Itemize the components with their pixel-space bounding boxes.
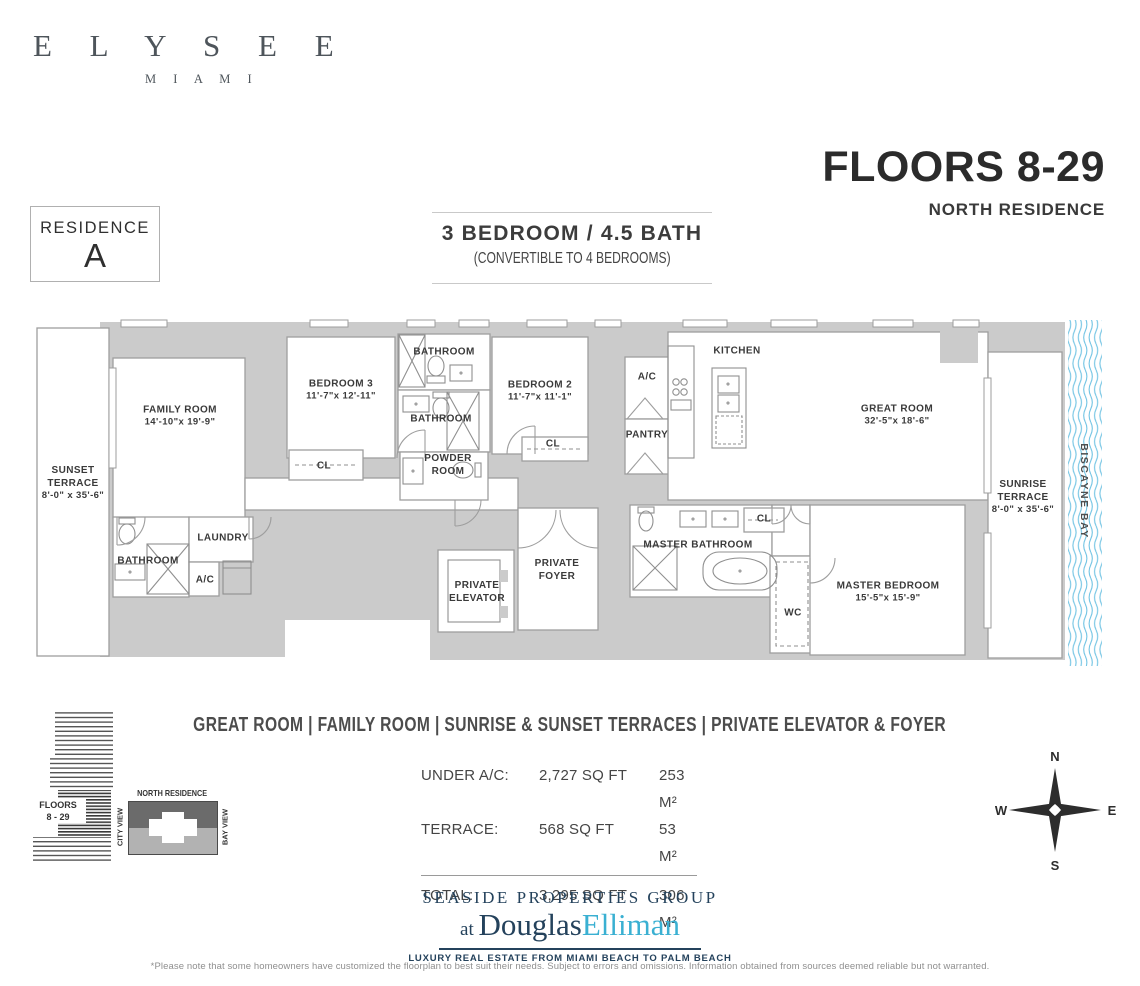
room-label-bedroom-2: BEDROOM 211'-7"x 11'-1" — [480, 378, 600, 403]
broker-logo: at DouglasElliman — [0, 909, 1140, 947]
room-label-family-room: FAMILY ROOM14'-10"x 19'-9" — [120, 403, 240, 428]
broker-block: SEASIDE PROPERTIES GROUP at DouglasEllim… — [0, 888, 1140, 964]
room-label-sunrise-terrace: SUNRISE TERRACE8'-0" x 35'-6" — [978, 478, 1068, 516]
header-rule-bottom — [432, 283, 712, 284]
area-row-under-ac: UNDER A/C: 2,727 SQ FT 253 M² — [421, 762, 697, 816]
biscayne-bay-label: BISCAYNE BAY — [1078, 443, 1090, 538]
room-label-great-room: GREAT ROOM32'-5"x 18'-6" — [832, 402, 962, 427]
broker-group-name: SEASIDE PROPERTIES GROUP — [0, 888, 1140, 908]
room-label-private-foyer: PRIVATE FOYER — [527, 557, 587, 583]
floors-title: FLOORS 8-29 — [822, 143, 1105, 192]
room-label-bathroom-top: BATHROOM — [404, 346, 484, 359]
room-label-ac-upper: A/C — [627, 371, 667, 384]
header-rule-top — [432, 212, 712, 213]
compass-n: N — [1050, 749, 1059, 764]
unit-key-diagram — [128, 801, 218, 855]
wall-notch — [940, 330, 978, 363]
room-label-kitchen: KITCHEN — [697, 345, 777, 358]
broker-rule — [439, 948, 701, 950]
broker-at: at — [460, 919, 478, 940]
room-label-closet-bed3: CL — [304, 460, 344, 473]
room-label-laundry: LAUNDRY — [188, 532, 258, 545]
room-label-bathroom-lower: BATHROOM — [103, 555, 193, 568]
features-text: GREAT ROOM | FAMILY ROOM | SUNRISE & SUN… — [194, 714, 947, 737]
residence-letter: A — [31, 238, 159, 274]
broker-name-douglas: Douglas — [478, 907, 581, 942]
room-label-master-closet: CL — [749, 513, 779, 526]
unit-key-bay-view: BAY VIEW — [221, 809, 230, 845]
floors-header: FLOORS 8-29 NORTH RESIDENCE — [822, 143, 1105, 220]
room-label-wc: WC — [776, 607, 810, 620]
room-label-sunset-terrace: SUNSET TERRACE8'-0" x 35'-6" — [38, 464, 108, 502]
room-ac-upper — [625, 357, 670, 419]
building-floors-label: FLOORS 8 - 29 — [30, 799, 86, 823]
room-family-room — [113, 358, 245, 518]
convertible-text: (CONVERTIBLE TO 4 BEDROOMS) — [474, 250, 671, 268]
room-label-private-elevator: PRIVATE ELEVATOR — [442, 579, 512, 605]
room-label-pantry: PANTRY — [617, 429, 677, 442]
unit-key-plus-v — [162, 812, 184, 843]
floor-plan-drawing — [35, 318, 1102, 668]
room-pantry — [625, 419, 670, 474]
compass-e: E — [1108, 803, 1117, 818]
residence-box: RESIDENCE A — [30, 206, 160, 282]
residence-label: RESIDENCE — [31, 219, 159, 238]
room-label-closet-bed2: CL — [533, 438, 573, 451]
unit-key-title: NORTH RESIDENCE — [128, 788, 216, 798]
room-label-master-bedroom: MASTER BEDROOM15'-5"x 15'-9" — [818, 579, 958, 604]
room-label-master-bathroom: MASTER BATHROOM — [618, 539, 778, 552]
room-label-bathroom-mid: BATHROOM — [401, 413, 481, 426]
room-label-powder-room: POWDER ROOM — [413, 452, 483, 478]
area-table-divider — [421, 875, 697, 876]
convertible-subtitle: (CONVERTIBLE TO 4 BEDROOMS) — [432, 250, 712, 268]
brand-name: E L Y S E E — [33, 28, 349, 64]
floorplan-page: { "brand": {"name": "E L Y S E E", "city… — [0, 0, 1140, 986]
bed-bath-title: 3 BEDROOM / 4.5 BATH — [432, 222, 712, 246]
brand-city: M I A M I — [145, 72, 349, 87]
room-label-ac-lower: A/C — [185, 574, 225, 587]
compass-rose-icon: N S E W — [995, 748, 1120, 873]
compass-s: S — [1051, 858, 1060, 873]
room-label-bedroom-3: BEDROOM 311'-7"x 12'-11" — [281, 377, 401, 402]
broker-name-elliman: Elliman — [582, 907, 680, 942]
footer-disclaimer: *Please note that some homeowners have c… — [0, 961, 1140, 972]
area-row-terrace: TERRACE: 568 SQ FT 53 M² — [421, 816, 697, 870]
brand-logo: E L Y S E E M I A M I — [33, 28, 349, 87]
unit-key-city-view: CITY VIEW — [116, 808, 125, 846]
compass-w: W — [995, 803, 1008, 818]
floors-subtitle: NORTH RESIDENCE — [822, 200, 1105, 220]
